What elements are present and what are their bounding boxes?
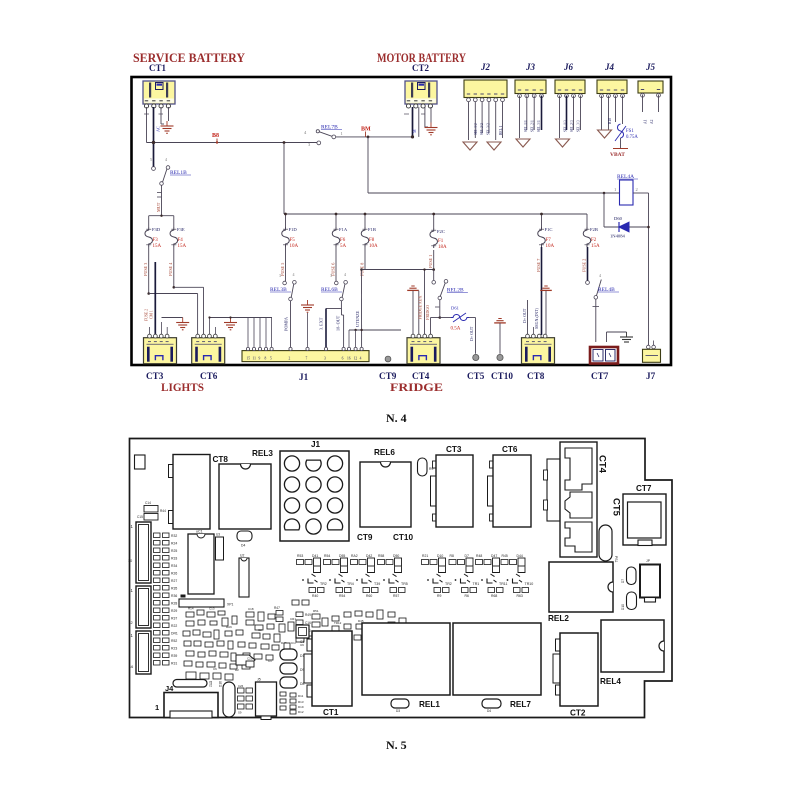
svg-text:A1: A1 [644,119,648,124]
svg-text:F2C: F2C [437,229,445,234]
svg-text:4: 4 [293,272,295,277]
svg-text:CT6: CT6 [502,445,518,454]
svg-text:R35: R35 [171,587,177,591]
svg-text:D41: D41 [312,554,318,558]
svg-text:XP1: XP1 [227,603,234,607]
svg-text:R47: R47 [274,606,280,610]
svg-text:RA2: RA2 [351,554,358,558]
svg-text:FUSE 1: FUSE 1 [428,255,433,268]
svg-text:4: 4 [344,272,346,277]
svg-text:R25: R25 [171,549,177,553]
svg-text:FUSE 2: FUSE 2 [145,309,149,321]
svg-text:R13: R13 [298,700,304,704]
svg-text:CT7: CT7 [591,371,609,381]
svg-text:UTENZE: UTENZE [355,310,360,327]
svg-text:R54: R54 [324,554,330,558]
svg-text:R36: R36 [171,594,177,598]
svg-text:R33: R33 [171,557,177,561]
svg-text:F3: F3 [153,238,159,243]
svg-text:SEL 1/2: SEL 1/2 [474,123,478,135]
svg-text:F1: F1 [438,239,444,244]
svg-text:CT2: CT2 [570,709,586,718]
svg-text:F5: F5 [290,238,296,243]
svg-text:R24: R24 [171,542,177,546]
svg-text:CT10: CT10 [491,371,513,381]
svg-text:J1: J1 [299,372,309,382]
svg-text:R39: R39 [171,654,177,658]
svg-text:1: 1 [341,131,343,136]
svg-text:6: 6 [342,356,344,360]
svg-text:CR1: CR1 [290,617,296,621]
svg-text:CT5: CT5 [611,498,622,517]
svg-text:5A: 5A [340,244,347,249]
svg-text:4: 4 [165,157,167,162]
svg-text:F7: F7 [546,238,552,243]
svg-text:D19: D19 [298,705,304,709]
svg-text:C18: C18 [248,607,254,611]
svg-text:CT9: CT9 [357,533,373,542]
svg-text:SEGN.(INT): SEGN.(INT) [534,308,539,329]
svg-text:F2: F2 [591,238,597,243]
svg-text:D4: D4 [241,544,245,548]
svg-text:FUSE 7: FUSE 7 [536,259,541,272]
svg-text:B8: B8 [212,133,219,139]
svg-text:10A: 10A [369,244,378,249]
svg-text:CT5: CT5 [467,371,485,381]
svg-text:REL 1: REL 1 [499,125,503,135]
svg-text:R63: R63 [517,594,523,598]
svg-text:F3D: F3D [152,227,161,232]
svg-text:C20: C20 [247,657,253,661]
svg-text:C6: C6 [213,667,217,671]
svg-text:DR1: DR1 [171,632,178,636]
svg-text:C15: C15 [137,515,143,519]
svg-text:R48: R48 [476,554,482,558]
svg-text:J6: J6 [563,62,574,72]
svg-text:R6: R6 [465,594,469,598]
svg-text:AC: AC [156,126,161,132]
svg-text:R29: R29 [171,609,177,613]
svg-text:R54: R54 [339,594,345,598]
svg-text:R34: R34 [171,564,177,568]
svg-text:15A: 15A [153,244,162,249]
svg-text:SEL 1/1: SEL 1/1 [524,120,528,132]
svg-text:15A: 15A [591,244,600,249]
svg-text:R21: R21 [422,554,428,558]
svg-text:R52: R52 [171,639,177,643]
svg-text:CT3: CT3 [146,371,164,381]
svg-text:TR4: TR4 [347,582,354,586]
svg-text:2: 2 [636,187,638,192]
svg-text:3: 3 [330,273,332,278]
svg-text:SEL 3/1: SEL 3/1 [537,120,541,132]
svg-text:10: 10 [128,559,132,563]
svg-text:TR2: TR2 [320,582,327,586]
svg-text:1N4084: 1N4084 [610,234,626,239]
svg-text:D42: D42 [366,554,372,558]
svg-text:16: 16 [347,356,351,360]
svg-text:TR5: TR5 [401,582,408,586]
svg-text:D44: D44 [517,554,523,558]
svg-text:R40: R40 [312,594,318,598]
svg-text:F3E: F3E [177,227,185,232]
svg-text:CT8: CT8 [213,455,229,464]
svg-text:18A: 18A [438,245,447,250]
svg-text:R68: R68 [491,594,497,598]
svg-text:PS1: PS1 [614,556,618,563]
svg-text:U3: U3 [216,533,220,537]
svg-text:5: 5 [270,356,272,360]
svg-text:11: 11 [253,356,257,360]
svg-text:9: 9 [259,356,261,360]
svg-text:7: 7 [306,356,308,360]
svg-text:C26: C26 [238,684,244,688]
svg-text:LIGHTS: LIGHTS [161,382,204,394]
svg-text:F1C: F1C [545,227,553,232]
svg-text:uC1: uC1 [196,530,203,534]
svg-text:F1B: F1B [368,227,376,232]
svg-text:J5: J5 [645,62,656,72]
svg-text:N. 4: N. 4 [386,411,407,425]
svg-text:CT2: CT2 [412,63,430,73]
svg-text:J5: J5 [257,678,261,682]
svg-text:D60: D60 [614,216,623,221]
svg-text:TR11: TR11 [499,582,508,586]
svg-text:12: 12 [354,356,358,360]
svg-text:FUSE 2: FUSE 2 [581,259,586,272]
svg-text:D+ OUT: D+ OUT [522,308,527,323]
svg-text:R8: R8 [450,554,454,558]
svg-text:0.5A: 0.5A [451,327,461,332]
svg-text:10A: 10A [290,244,299,249]
svg-text:CT1: CT1 [323,708,339,717]
svg-text:D7: D7 [621,579,625,583]
svg-text:REL7: REL7 [510,700,531,709]
svg-text:R23: R23 [171,647,177,651]
svg-text:15A: 15A [178,244,187,249]
svg-text:D50: D50 [393,554,399,558]
svg-text:C1: C1 [268,659,272,663]
svg-text:J2: J2 [480,62,491,72]
svg-text:REL4: REL4 [600,677,621,686]
svg-text:D11: D11 [298,694,304,698]
svg-text:16: 16 [129,665,133,669]
svg-text:R28: R28 [171,602,177,606]
svg-text:D10: D10 [437,554,443,558]
svg-text:POMPA: POMPA [284,317,289,331]
svg-text:3: 3 [324,356,326,360]
svg-text:J4: J4 [165,684,174,693]
svg-text:R44: R44 [160,509,166,513]
svg-text:REL3: REL3 [252,449,273,458]
svg-text:R26: R26 [171,572,177,576]
svg-text:SEL 1/3: SEL 1/3 [564,120,568,132]
svg-text:REL2: REL2 [548,614,569,623]
svg-text:FRIDGE: FRIDGE [390,382,443,394]
svg-text:C1: C1 [300,640,304,644]
svg-text:3: 3 [279,273,281,278]
svg-text:D7: D7 [465,554,469,558]
svg-text:D4: D4 [487,709,491,713]
svg-text:R9: R9 [437,594,441,598]
svg-text:5: 5 [150,157,152,162]
svg-text:TR2: TR2 [445,582,452,586]
svg-text:8: 8 [265,356,267,360]
svg-text:MUT: MUT [156,202,161,212]
svg-text:1: 1 [614,187,616,192]
svg-text:T39: T39 [374,582,380,586]
svg-text:F1D: F1D [289,227,298,232]
svg-text:M: M [412,129,417,133]
svg-text:R37: R37 [171,617,177,621]
svg-text:R51: R51 [313,609,319,613]
svg-text:D61: D61 [451,306,460,311]
svg-text:TR12: TR12 [334,621,342,625]
svg-text:F8: F8 [369,238,375,243]
svg-text:N. 5: N. 5 [386,738,407,752]
svg-text:R45: R45 [502,554,508,558]
svg-text:TR1: TR1 [473,582,480,586]
svg-text:SEL 3/3: SEL 3/3 [577,120,581,132]
svg-text:2: 2 [289,356,291,360]
svg-text:SEL 3/2: SEL 3/2 [487,123,491,135]
svg-text:CT9: CT9 [379,371,397,381]
svg-text:R58: R58 [378,554,384,558]
svg-text:SEL 2/1: SEL 2/1 [531,120,535,132]
svg-text:CM 1: CM 1 [150,310,154,319]
svg-text:RA6: RA6 [226,625,232,629]
svg-text:D10: D10 [621,604,625,610]
svg-text:C13: C13 [209,607,215,611]
svg-text:CT1: CT1 [149,63,167,73]
svg-text:CT6: CT6 [200,371,218,381]
svg-text:3. EXT: 3. EXT [319,317,324,330]
svg-text:D16: D16 [219,681,223,687]
svg-text:FS1: FS1 [626,129,634,134]
svg-text:C14: C14 [145,501,151,505]
svg-text:D+ OUT: D+ OUT [469,326,474,341]
svg-text:4: 4 [360,356,362,360]
svg-text:CT3: CT3 [446,445,462,454]
svg-text:R53: R53 [297,554,303,558]
svg-text:S9: S9 [238,711,242,715]
svg-text:1: 1 [155,703,159,712]
svg-text:CT10: CT10 [393,533,413,542]
svg-text:SEL 2/3: SEL 2/3 [570,120,574,132]
svg-text:F6: F6 [340,238,346,243]
svg-text:CT4: CT4 [597,455,608,474]
svg-text:BM: BM [361,127,371,133]
svg-text:C2: C2 [258,628,262,632]
svg-text:FRIDGO: FRIDGO [425,305,430,320]
svg-text:F4: F4 [178,238,184,243]
svg-text:R49: R49 [305,613,311,617]
svg-text:R60: R60 [366,594,372,598]
svg-text:R31: R31 [171,662,177,666]
svg-text:R14: R14 [188,607,194,611]
svg-text:D2: D2 [235,668,239,672]
svg-text:4: 4 [599,273,601,278]
svg-text:FUSE 4: FUSE 4 [168,262,173,276]
svg-text:R32: R32 [171,534,177,538]
svg-text:F2B: F2B [590,227,598,232]
svg-text:REL1: REL1 [419,700,440,709]
svg-text:A2: A2 [650,119,654,124]
svg-text:J7: J7 [646,371,656,381]
svg-text:R57: R57 [393,594,399,598]
svg-text:10- OUT: 10- OUT [336,315,341,331]
svg-text:J4: J4 [604,62,615,72]
svg-text:15: 15 [247,356,251,360]
svg-text:D47: D47 [491,554,497,558]
svg-text:10A: 10A [546,244,555,249]
svg-text:REL6: REL6 [374,448,395,457]
svg-text:J1: J1 [311,440,321,449]
svg-text:FRIDGE AUX: FRIDGE AUX [417,295,422,319]
svg-text:U2: U2 [240,554,244,558]
svg-text:J3: J3 [525,62,536,72]
svg-text:D55: D55 [339,554,345,558]
svg-text:R22: R22 [171,624,177,628]
svg-text:CT7: CT7 [636,484,652,493]
svg-text:F1A: F1A [339,227,348,232]
svg-text:TR10: TR10 [525,582,534,586]
svg-text:0.75A: 0.75A [626,135,638,140]
svg-text:2: 2 [131,621,133,625]
svg-text:CT4: CT4 [412,371,430,381]
svg-text:R27: R27 [171,579,177,583]
svg-text:SEL 2/2: SEL 2/2 [480,123,484,135]
svg-text:D52: D52 [209,681,213,687]
svg-text:D12: D12 [298,710,304,714]
svg-text:D3: D3 [396,709,400,713]
svg-text:R18: R18 [608,118,612,124]
svg-text:FUSE 3: FUSE 3 [143,263,148,276]
svg-text:VBAT: VBAT [610,152,625,158]
svg-text:CT8: CT8 [527,371,545,381]
